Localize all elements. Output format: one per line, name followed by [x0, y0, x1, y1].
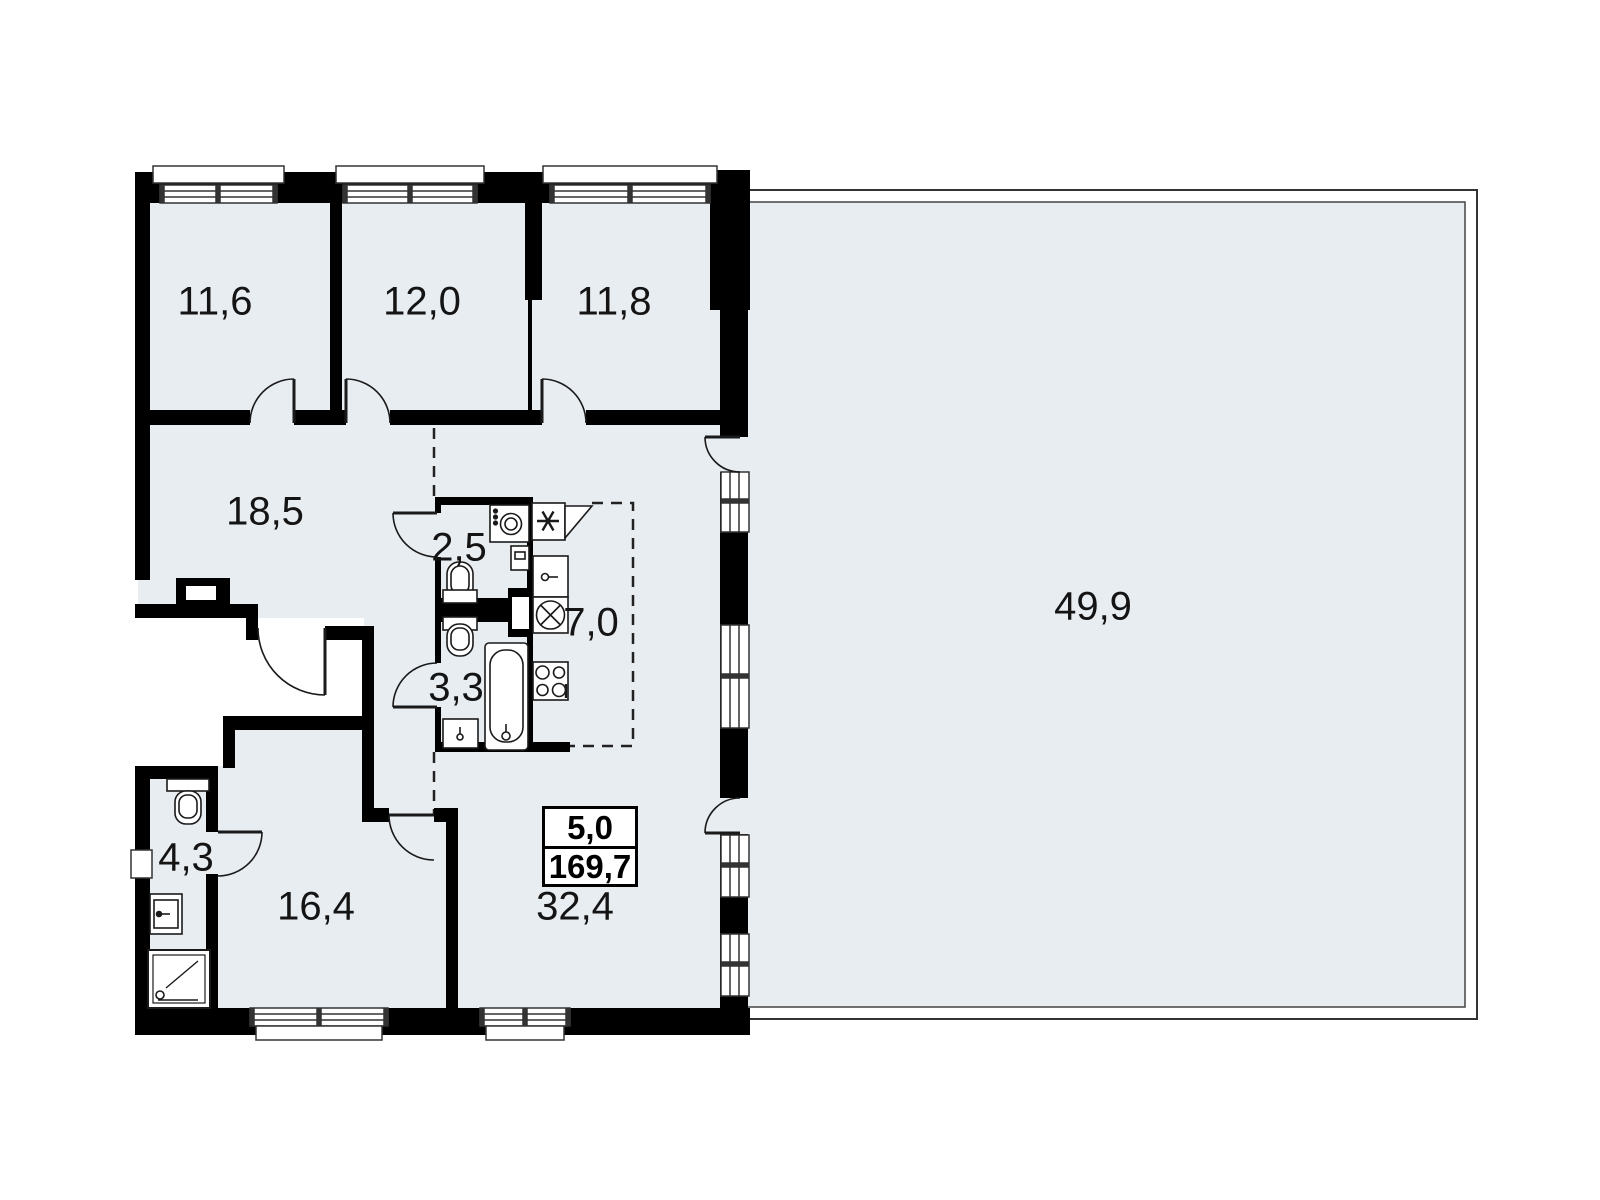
wall-niche: [131, 850, 152, 878]
room-area-label-kitchen: 7,0: [563, 601, 619, 646]
room-area-label-wc: 2,5: [431, 526, 487, 571]
floor-plan-drawing: [0, 0, 1600, 1200]
washing-machine-icon: [490, 505, 529, 542]
total-area-value: 169,7: [545, 849, 635, 884]
room-area-label-hallway: 18,5: [226, 490, 304, 535]
window-right-1: [721, 472, 749, 532]
bath-sink-icon: [443, 719, 478, 748]
window-bottom-1: [250, 1008, 388, 1040]
room-area-label-bedroom-1: 11,6: [178, 280, 253, 325]
terrace-reduced-area-value: 5,0: [545, 809, 635, 849]
bathtub-icon: [485, 643, 528, 750]
window-top-3: [543, 166, 717, 203]
towel-rail-icon: [447, 624, 473, 656]
total-area-box: 5,0 169,7: [542, 806, 638, 887]
window-top-2: [336, 166, 484, 203]
shower-icon: [148, 950, 210, 1008]
water-heater-icon: [511, 546, 529, 570]
room-area-label-bedroom-3: 11,8: [577, 280, 652, 325]
room-area-label-living-room: 32,4: [536, 885, 614, 930]
sink-2-icon: [150, 894, 182, 934]
kitchen-counter-icon: [533, 556, 568, 597]
room-area-label-bathroom-2: 4,3: [158, 836, 214, 881]
window-right-3: [721, 835, 749, 897]
room-area-label-bedroom-2: 12,0: [383, 280, 461, 325]
window-right-4: [721, 934, 749, 996]
room-area-label-bedroom-4: 16,4: [277, 885, 355, 930]
stove-icon: [533, 662, 568, 700]
room-area-label-bathroom: 3,3: [428, 666, 484, 711]
floor-plan-page: 11,6 12,0 11,8 18,5 2,5 7,0 3,3 4,3 16,4…: [0, 0, 1600, 1200]
room-area-label-terrace: 49,9: [1054, 585, 1132, 630]
window-top-1: [153, 166, 284, 203]
window-right-2: [721, 625, 749, 728]
window-bottom-2: [480, 1008, 570, 1040]
